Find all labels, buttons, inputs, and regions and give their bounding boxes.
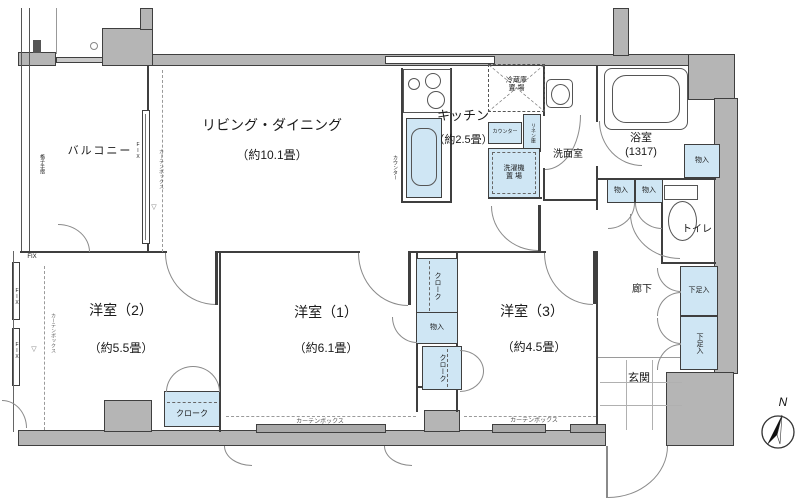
room-label-hallway: 廊下 — [624, 284, 660, 296]
wall-living-south-b — [217, 251, 360, 253]
wall-balcony-living-top — [147, 66, 149, 114]
cloak-bed3-dash — [447, 349, 448, 387]
room-size-living: （約10.1畳） — [158, 148, 386, 162]
fix-label-bed2-upper: FIX — [12, 286, 20, 308]
cloak-bed2-label: クローク — [176, 409, 208, 418]
handrail-label: 格子手摺 — [36, 138, 45, 190]
door-arc-closet-bed1 — [392, 317, 417, 343]
stove-burner-1 — [408, 78, 420, 90]
door-leaf-entrance — [606, 446, 608, 498]
balcony-railing-outer — [21, 8, 22, 253]
window-arc-bed1 — [224, 446, 252, 466]
entrance-tile-v1 — [626, 360, 627, 430]
fix-label-living: FIX — [133, 140, 141, 162]
bathtub-inner — [612, 75, 680, 123]
cloak-bed3: クローク — [422, 346, 462, 390]
closet-hall-1-label: 物入 — [614, 187, 628, 195]
door-leaf-bed3 — [593, 251, 596, 304]
room-size-bedroom1: （約6.1畳） — [278, 341, 374, 355]
wall-top-vent — [613, 8, 629, 56]
window-arc-bed3 — [384, 446, 412, 466]
room-label-bedroom1: 洋室（1） — [272, 304, 380, 321]
washer-label: 洗濯機置 場 — [504, 165, 525, 181]
toilet-south-wall — [661, 262, 716, 264]
entrance-tile-v2 — [652, 360, 653, 430]
cloak-bed1-dash — [429, 261, 430, 311]
door-arc-shoe2-top — [657, 318, 681, 344]
room-label-bedroom3: 洋室（3） — [482, 303, 582, 320]
counter-kitchen-label: カウンター — [389, 145, 398, 189]
room-label-bedroom2: 洋室（2） — [62, 302, 180, 319]
wall-top-right-corner — [688, 54, 735, 100]
cloak-bed2: クローク — [164, 391, 220, 427]
shoe-cabinet-2: 下足入 — [680, 316, 718, 370]
closet-hall-2: 物入 — [635, 179, 663, 203]
closet-bath-side-label: 物入 — [695, 157, 709, 165]
door-arc-entrance — [608, 446, 668, 498]
window-bed3-bottom-left — [492, 424, 546, 433]
closet-hall-2-label: 物入 — [642, 187, 656, 195]
balcony-railing-post — [33, 40, 41, 53]
washbasin-bowl — [551, 84, 570, 105]
shoe-cabinet-2-label: 下足入 — [695, 333, 703, 354]
washer-space: 洗濯機置 場 — [488, 148, 540, 198]
room-size-bedroom3: （約4.5畳） — [492, 340, 576, 354]
door-arc-shoe1-top — [657, 268, 681, 292]
cloak-bed3-label: クローク — [438, 354, 446, 382]
linen-cabinet-label: リネン庫 — [529, 123, 535, 143]
wall-bed3-hall — [596, 251, 598, 432]
room-size-bathroom: (1317) — [604, 146, 678, 159]
wall-column-base — [424, 410, 460, 432]
door-leaf-living — [538, 205, 541, 251]
glass-marker-bed2: ▽ — [28, 346, 40, 354]
balcony-railing-inner — [29, 8, 30, 253]
door-arc-washroom — [545, 115, 581, 170]
fix-label-bed2-lower: FIX — [12, 340, 20, 362]
room-size-bedroom2: （約5.5畳） — [70, 341, 172, 355]
glass-marker-living: ▽ — [148, 204, 160, 212]
stove-burner-3 — [427, 91, 445, 109]
room-label-washroom: 洗面室 — [540, 149, 596, 161]
curtain-box-line-bed3 — [464, 416, 596, 417]
door-arc-cloak-bed3-bottom — [460, 371, 484, 392]
room-label-living: リビング・ダイニング — [158, 117, 386, 134]
room-label-entrance: 玄関 — [616, 372, 662, 385]
north-label: N — [779, 395, 788, 409]
door-leaf-bed1 — [408, 251, 411, 305]
door-arc-living — [491, 206, 538, 251]
curtain-box-line-bed2 — [44, 266, 45, 430]
room-size-kitchen: （約2.5畳） — [418, 134, 508, 147]
closet-hall-1: 物入 — [607, 179, 635, 203]
door-arc-shoe1-bottom — [657, 292, 681, 316]
cloak-bed2-dash — [167, 402, 217, 403]
closet-bed1: 物入 — [416, 312, 458, 344]
door-arc-shoe2-bottom — [657, 344, 681, 370]
door-arc-cloak-bed3-top — [460, 350, 484, 371]
door-arc-balcony-partition — [58, 224, 90, 252]
floor-plan: 冷蔵庫置 場 カウンター リネン庫 洗濯機置 場 物入 物入 物入 下足入 下足… — [0, 0, 800, 499]
door-arc-bed1 — [358, 253, 408, 306]
wall-washroom-bath-upper — [596, 66, 598, 122]
door-arc-neighbor — [2, 400, 27, 428]
shoe-cabinet-1: 下足入 — [680, 266, 718, 316]
room-label-kitchen: キッチン — [420, 108, 506, 124]
toilet-tank — [664, 185, 698, 200]
wall-living-south-c — [411, 251, 546, 253]
room-label-toilet: トイレ — [674, 224, 720, 236]
balcony-connector — [56, 57, 103, 63]
stove-burner-2 — [425, 73, 441, 89]
wall-bottom-pillar — [104, 400, 152, 432]
linen-cabinet: リネン庫 — [523, 114, 541, 152]
cloak-bed1: クローク — [416, 258, 458, 314]
compass: N — [752, 392, 800, 458]
window-bed3-bottom-right — [570, 424, 606, 433]
door-leaf-bed2 — [215, 251, 218, 305]
wall-bottom-right-corner — [666, 372, 734, 446]
closet-bath-side: 物入 — [684, 144, 720, 178]
entrance-tile-h2 — [600, 405, 682, 406]
balcony-partition — [18, 52, 56, 66]
window-kitchen-top — [385, 56, 495, 64]
kitchen-counter-bottom — [401, 201, 452, 203]
refrigerator-label: 冷蔵庫置 場 — [489, 77, 544, 94]
closet-bed1-label: 物入 — [430, 324, 444, 332]
curtain-box-label-bed2: カーテンボックス — [48, 292, 56, 374]
wall-top-left-step — [140, 8, 153, 30]
balcony-boundary-line — [56, 8, 57, 54]
washroom-south-wall — [543, 199, 598, 201]
room-label-bathroom: 浴室 — [604, 132, 678, 145]
wall-kitchen-washroom-lower — [543, 168, 545, 201]
wall-washroom-bath-lower — [596, 166, 598, 210]
wall-top-left-pillar — [102, 28, 153, 66]
fix-label-bed2-top: FIX — [22, 254, 42, 261]
window-balcony-living — [142, 110, 150, 244]
door-arc-bed3 — [544, 253, 593, 305]
cloak-bed1-label: クローク — [433, 272, 441, 300]
door-arc-cloak-bed2-right — [193, 366, 220, 392]
curtain-box-label-bed3: カーテンボックス — [492, 418, 576, 425]
curtain-box-label-living: カーテンボックス — [156, 128, 164, 210]
drain-circle — [90, 42, 98, 50]
door-arc-cloak-bed2-left — [166, 366, 193, 392]
shoe-cabinet-1-label: 下足入 — [689, 287, 710, 295]
window-balcony-living-mullion — [145, 114, 146, 240]
refrigerator-space: 冷蔵庫置 場 — [488, 64, 545, 112]
door-arc-bed2 — [165, 253, 216, 305]
curtain-box-label-bed1: カーテンボックス — [270, 419, 370, 426]
curtain-box-line-bed1 — [226, 416, 416, 417]
